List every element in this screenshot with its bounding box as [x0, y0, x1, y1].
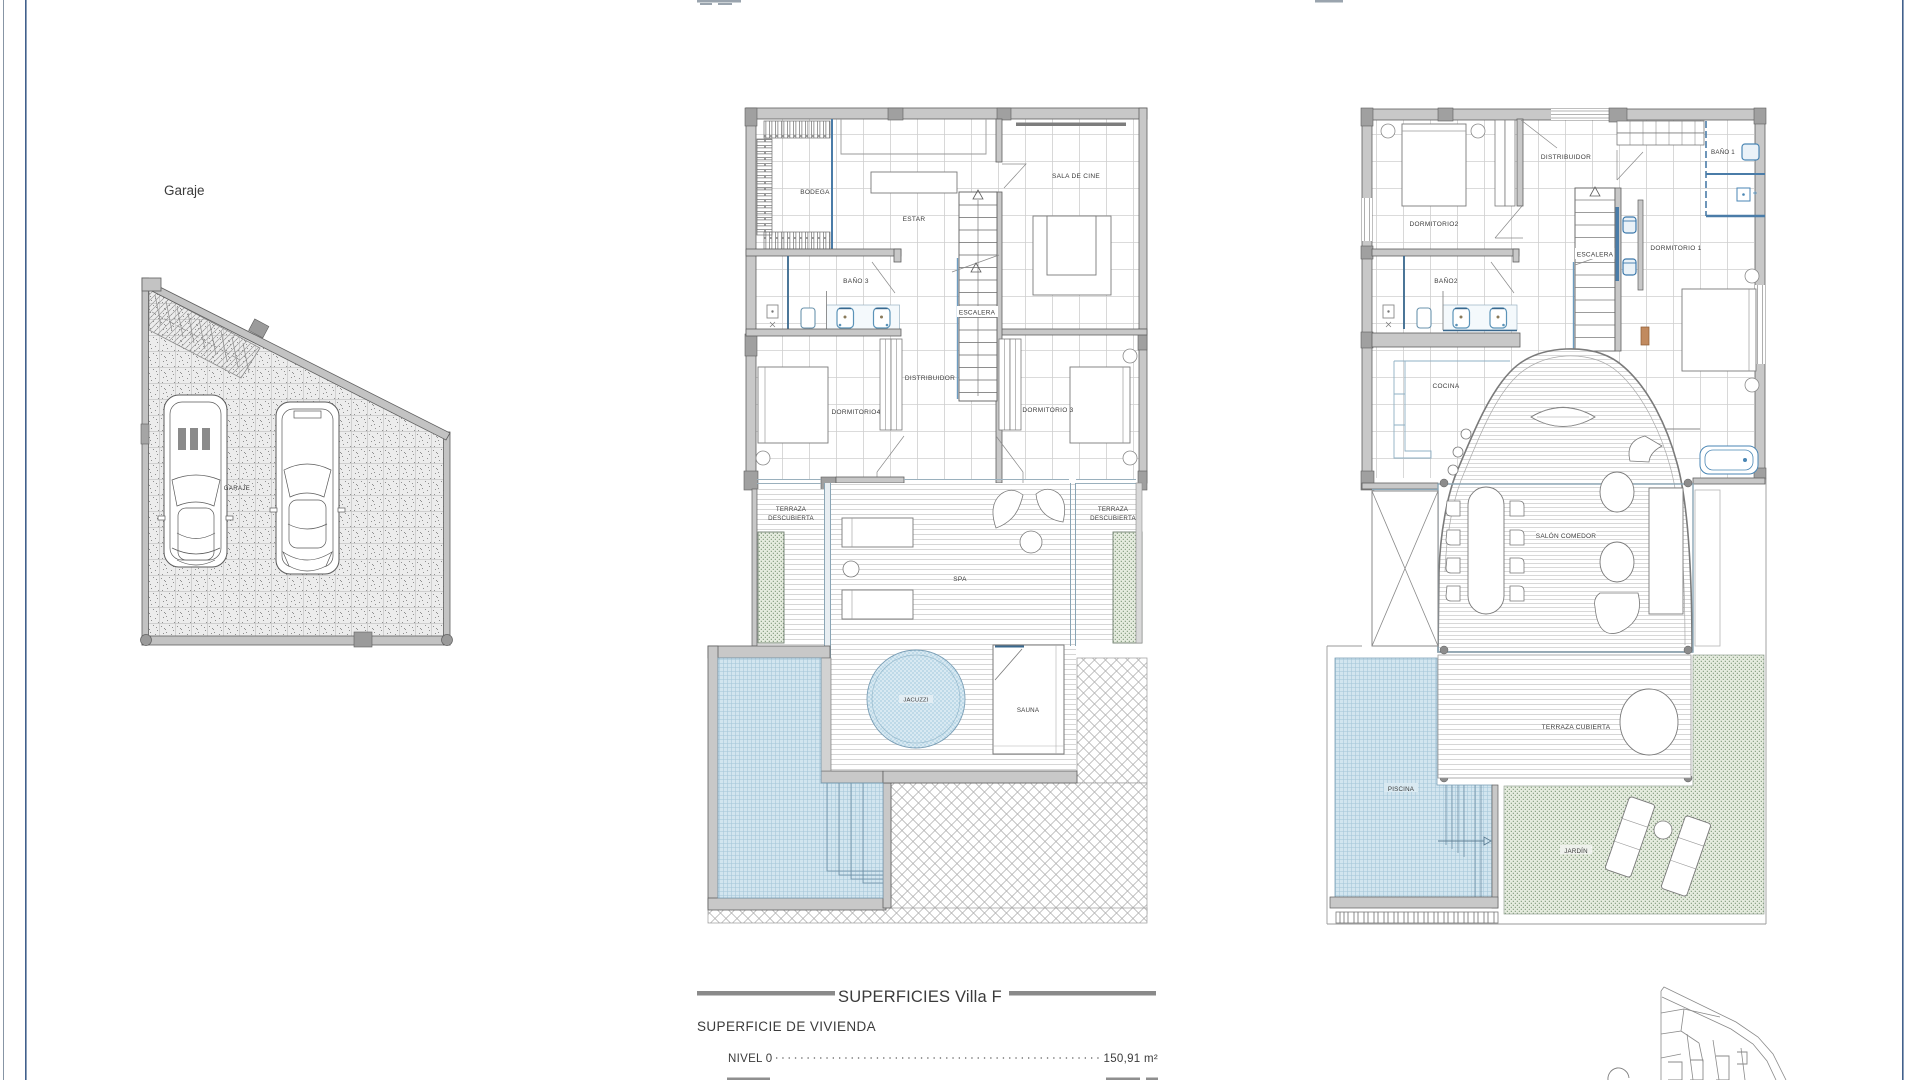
svg-text:BAÑO 3: BAÑO 3 — [843, 276, 869, 285]
svg-text:Garaje: Garaje — [164, 183, 205, 198]
svg-text:DISTRIBUIDOR: DISTRIBUIDOR — [905, 375, 955, 382]
svg-text:GARAJE: GARAJE — [224, 486, 250, 492]
svg-text:NIVEL 0: NIVEL 0 — [728, 1053, 773, 1065]
svg-text:DORMITORIO 1: DORMITORIO 1 — [1650, 245, 1701, 252]
svg-text:TERRAZA: TERRAZA — [776, 506, 807, 513]
svg-text:PISCINA: PISCINA — [1388, 786, 1415, 793]
svg-text:ESCALERA: ESCALERA — [959, 310, 996, 317]
svg-text:SUPERFICIE DE VIVIENDA: SUPERFICIE DE VIVIENDA — [697, 1019, 876, 1034]
svg-text:TERRAZA: TERRAZA — [1098, 506, 1129, 513]
svg-text:BODEGA: BODEGA — [800, 189, 830, 196]
svg-text:ESCALERA: ESCALERA — [1577, 252, 1614, 259]
svg-text:TERRAZA CUBIERTA: TERRAZA CUBIERTA — [1542, 724, 1611, 731]
svg-text:DORMITORIO4: DORMITORIO4 — [831, 409, 880, 416]
svg-text:DORMITORIO 3: DORMITORIO 3 — [1022, 407, 1073, 414]
svg-text:SPA: SPA — [953, 576, 967, 583]
svg-text:DESCUBIERTA: DESCUBIERTA — [1090, 515, 1136, 522]
svg-text:DESCUBIERTA: DESCUBIERTA — [768, 515, 814, 522]
svg-text:BAÑO2: BAÑO2 — [1434, 276, 1458, 285]
svg-text:SUPERFICIES Villa F: SUPERFICIES Villa F — [838, 988, 1002, 1006]
svg-text:JARDÍN: JARDÍN — [1564, 848, 1588, 855]
svg-text:SALA DE CINE: SALA DE CINE — [1052, 173, 1100, 180]
svg-text:DISTRIBUIDOR: DISTRIBUIDOR — [1541, 154, 1591, 161]
svg-text:JACUZZI: JACUZZI — [903, 698, 928, 704]
svg-text:ESTAR: ESTAR — [903, 216, 926, 223]
svg-text:DORMITORIO2: DORMITORIO2 — [1409, 221, 1458, 228]
svg-text:SAUNA: SAUNA — [1017, 707, 1040, 714]
svg-text:150,91 m²: 150,91 m² — [1104, 1053, 1158, 1065]
svg-text:BAÑO 1: BAÑO 1 — [1711, 149, 1735, 156]
svg-text:COCINA: COCINA — [1432, 383, 1459, 390]
svg-text:SALÓN COMEDOR: SALÓN COMEDOR — [1536, 531, 1596, 540]
